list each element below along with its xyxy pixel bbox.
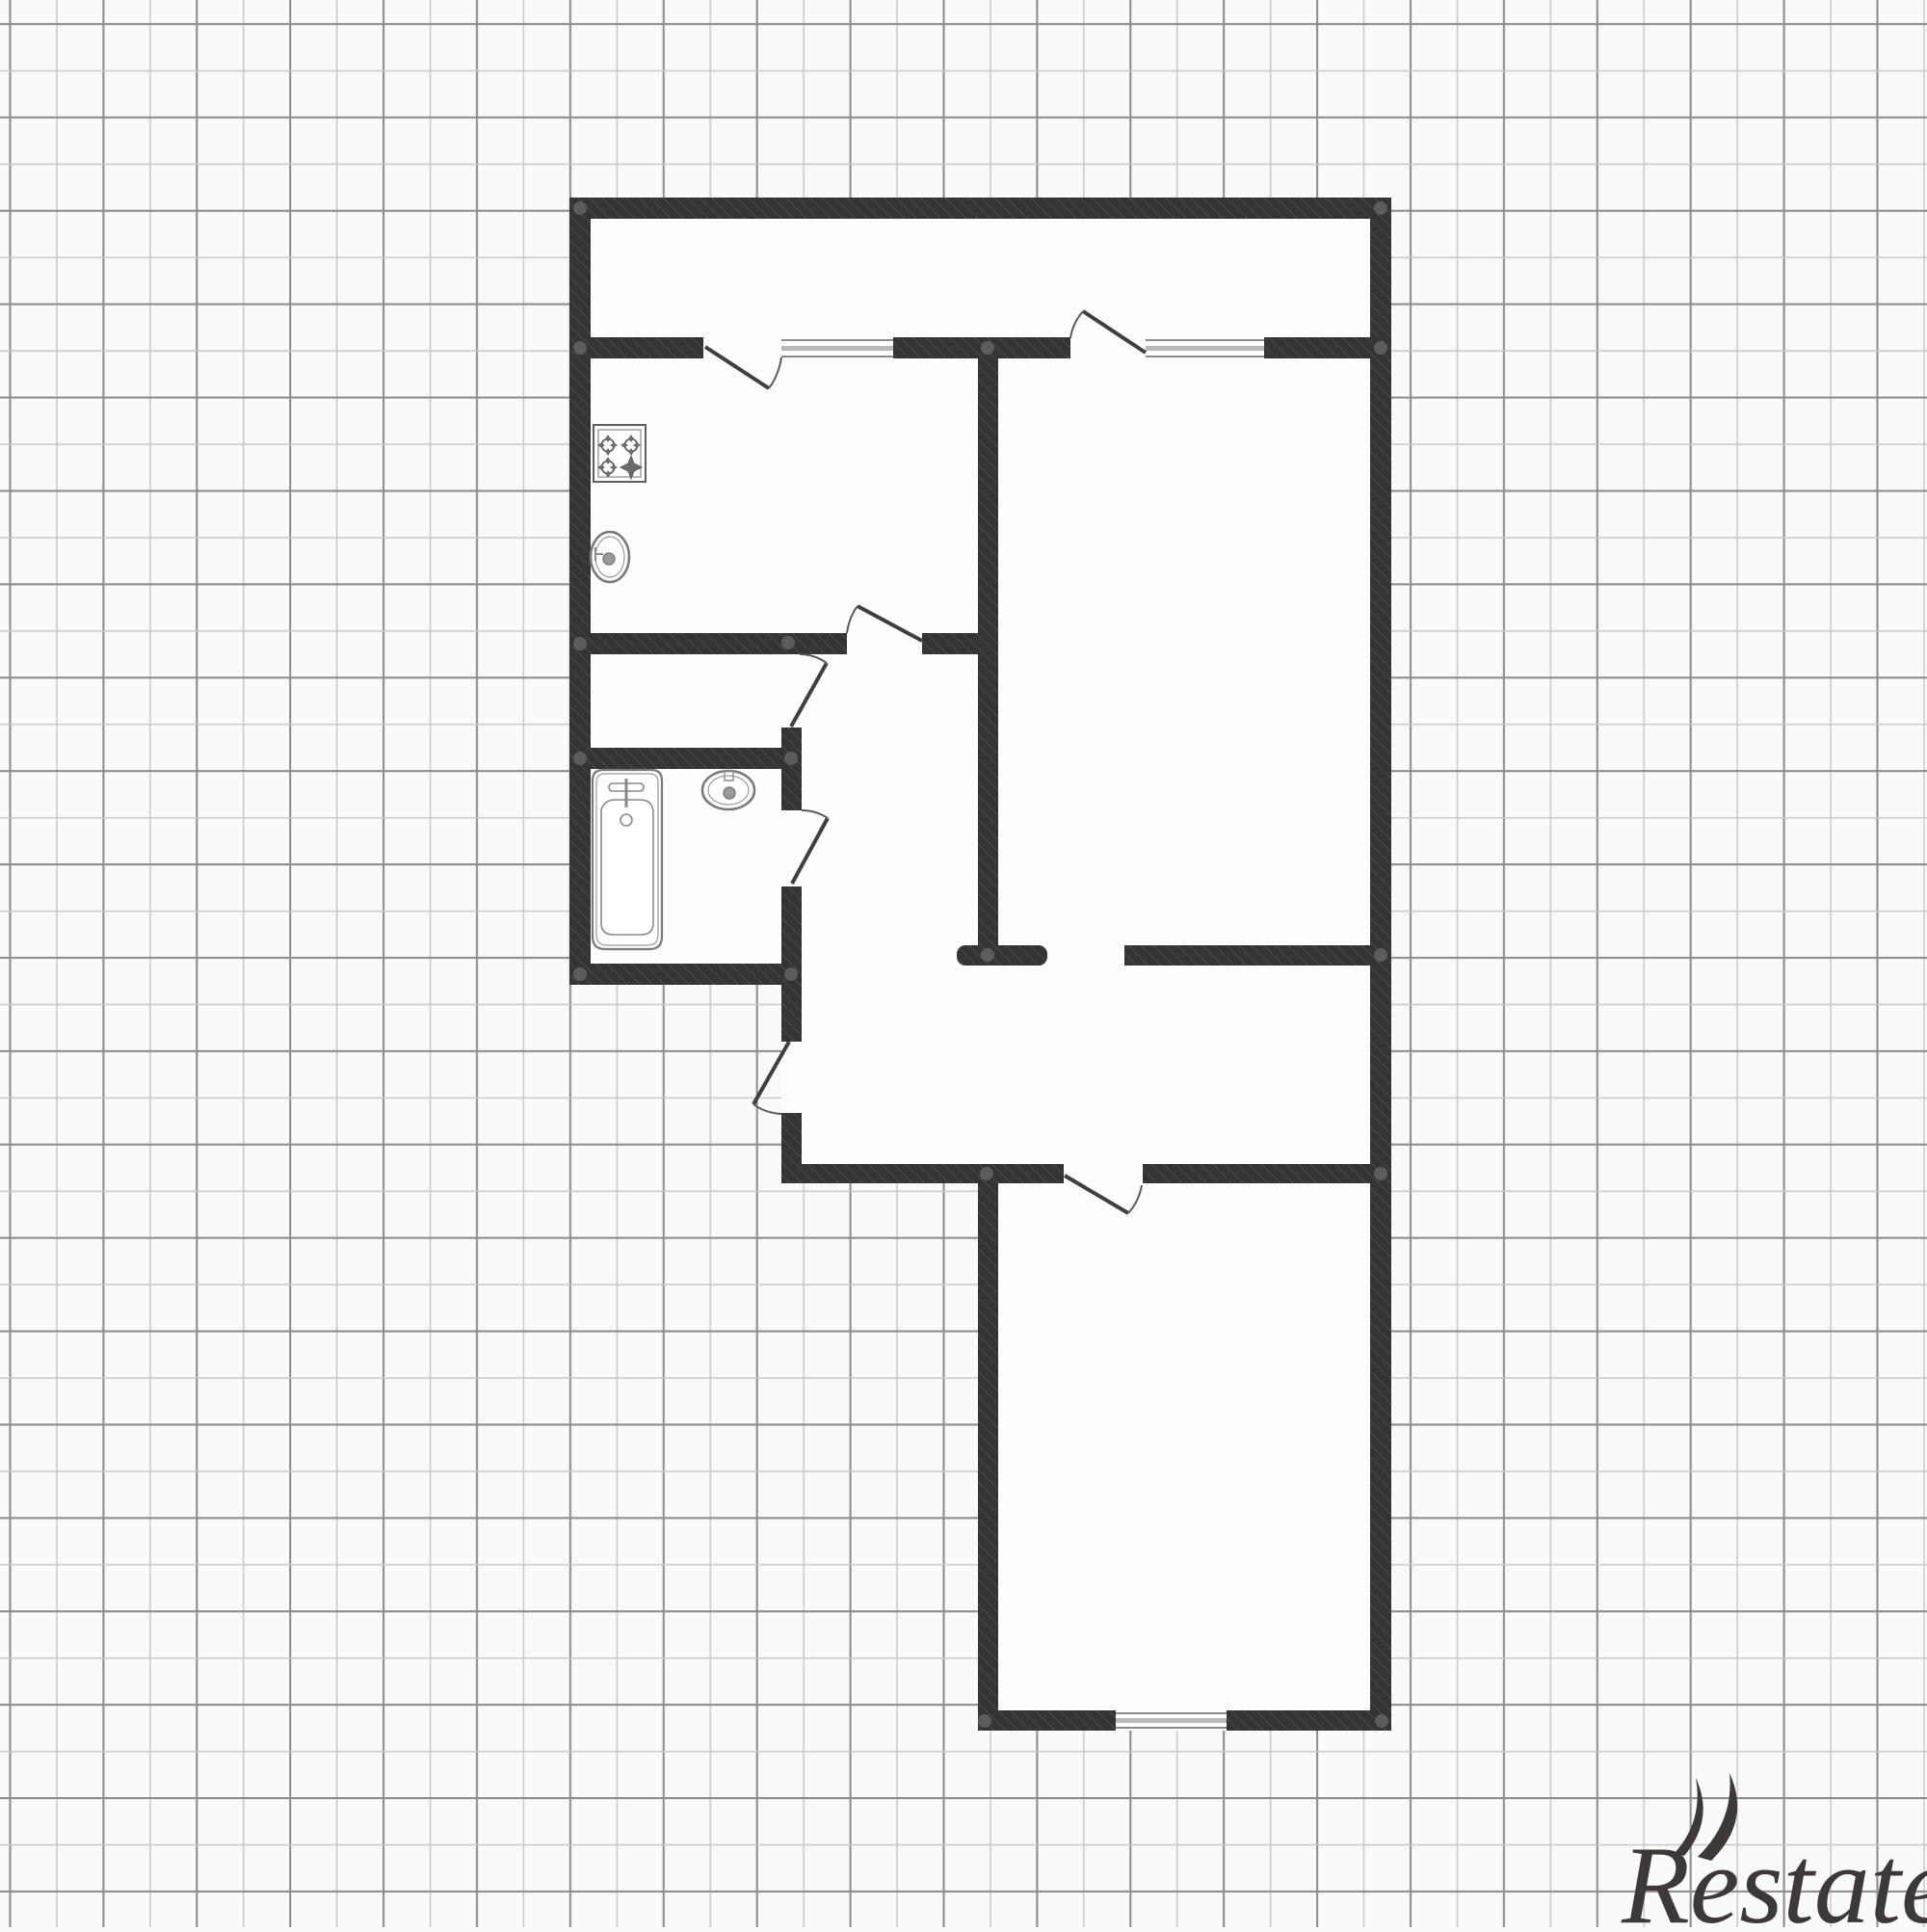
svg-text:Restate: Restate — [1621, 1824, 1927, 1927]
